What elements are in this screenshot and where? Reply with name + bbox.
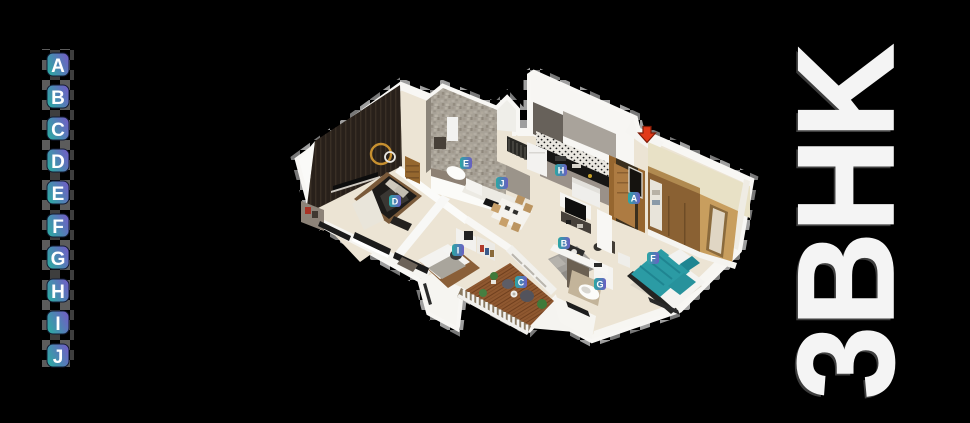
- svg-text:E: E: [463, 159, 469, 169]
- svg-text:D: D: [51, 152, 65, 173]
- svg-text:J: J: [53, 347, 64, 368]
- svg-text:I: I: [457, 246, 460, 256]
- svg-text:G: G: [596, 280, 603, 290]
- svg-text:A: A: [51, 56, 65, 77]
- svg-text:F: F: [650, 254, 656, 264]
- svg-text:C: C: [518, 278, 525, 288]
- svg-text:A: A: [631, 194, 638, 204]
- svg-text:E: E: [52, 184, 65, 205]
- svg-text:I: I: [55, 314, 60, 335]
- svg-text:F: F: [52, 217, 64, 238]
- svg-text:D: D: [392, 197, 399, 207]
- svg-text:C: C: [51, 120, 65, 141]
- svg-text:H: H: [558, 166, 565, 176]
- svg-text:B: B: [51, 88, 65, 109]
- svg-text:3BHK: 3BHK: [770, 44, 923, 399]
- svg-text:B: B: [561, 239, 568, 249]
- svg-text:G: G: [51, 249, 66, 270]
- svg-text:J: J: [499, 179, 504, 189]
- svg-text:H: H: [51, 282, 65, 303]
